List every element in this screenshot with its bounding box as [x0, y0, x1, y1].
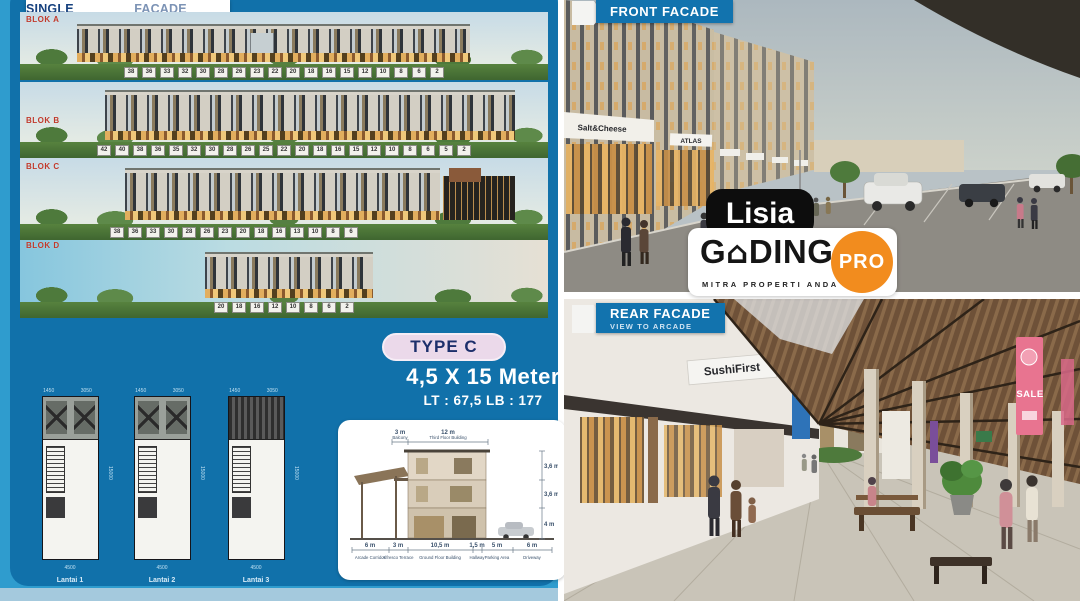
- svg-text:Ground Floor Building: Ground Floor Building: [419, 555, 461, 560]
- dim-label: 1450: [229, 388, 240, 394]
- unit-number-badge: 2: [340, 302, 354, 313]
- unit-number-badge: 10: [286, 302, 300, 313]
- unit-number-badge: 2: [457, 145, 471, 156]
- rear-facade-render: SushiFirst: [564, 299, 1080, 601]
- dim-label: 3050: [267, 388, 278, 394]
- gading-letter-g: G: [700, 233, 726, 270]
- blok-c-building: [125, 168, 440, 220]
- unit-number-badge: 12: [358, 67, 372, 78]
- rear-facade-scene: SushiFirst: [564, 299, 1080, 601]
- unit-number-badge: 12: [268, 302, 282, 313]
- unit-number-badge: 20: [236, 227, 250, 238]
- svg-text:Parking Area: Parking Area: [485, 555, 510, 560]
- svg-text:Driveway: Driveway: [523, 555, 542, 560]
- svg-text:Alfresco Terrace: Alfresco Terrace: [383, 555, 415, 560]
- unit-number-badge: 42: [97, 145, 111, 156]
- dim-label: 3050: [81, 388, 92, 394]
- sale-banner-text: SALE: [1016, 389, 1043, 400]
- dim-label: 15000: [293, 466, 299, 480]
- blok-a-label: BLOK A: [26, 15, 59, 24]
- carport-cross: [166, 401, 187, 434]
- blok-c-dark-building: [443, 176, 515, 220]
- unit-number-badge: 38: [124, 67, 138, 78]
- dim-label: 15000: [107, 466, 113, 480]
- dim-label: 1450: [43, 388, 54, 394]
- svg-text:6 m: 6 m: [365, 543, 375, 549]
- brochure-canvas: SINGLE BALCONY FACADE DESIGN BLOK A 3836…: [0, 0, 1080, 601]
- carport-area: [135, 397, 190, 440]
- unit-number-badge: 28: [214, 67, 228, 78]
- unit-number-badge: 35: [169, 145, 183, 156]
- unit-number-badge: 30: [164, 227, 178, 238]
- unit-number-badge: 6: [344, 227, 358, 238]
- unit-number-badge: 18: [304, 67, 318, 78]
- svg-text:3,6 m: 3,6 m: [544, 492, 558, 498]
- stair-area: [138, 446, 157, 493]
- carport-area: [43, 397, 98, 440]
- facade-strip-blok-a: BLOK A 383633323028262322201816151210862: [20, 12, 548, 80]
- bathroom-area: [46, 497, 65, 518]
- svg-text:6 m: 6 m: [527, 543, 537, 549]
- logo-tagline: MITRA PROPERTI ANDA: [702, 280, 839, 289]
- pro-badge: PRO: [831, 231, 893, 293]
- unit-number-badge: 28: [223, 145, 237, 156]
- type-c-pill: TYPE C: [382, 333, 506, 361]
- floor-plan-drawing: [134, 396, 191, 560]
- type-c-area: LT : 67,5 LB : 177: [390, 393, 576, 408]
- front-facade-banner-title: FRONT FACADE: [610, 4, 719, 19]
- section-diagram: 3 m Balcony 12 m Third Floor Building: [346, 426, 558, 574]
- mid-shophouse: ATLAS: [654, 10, 714, 235]
- unit-number-badge: 20: [214, 302, 228, 313]
- svg-text:3 m: 3 m: [393, 543, 403, 549]
- unit-number-badge: 6: [412, 67, 426, 78]
- carport-cross: [74, 401, 95, 434]
- carport-cross: [46, 401, 67, 434]
- roof-deck-area: [229, 397, 284, 440]
- unit-number-badge: 28: [182, 227, 196, 238]
- svg-text:5 m: 5 m: [492, 543, 502, 549]
- unit-number-badge: 10: [308, 227, 322, 238]
- section-diagram-card: 3 m Balcony 12 m Third Floor Building: [338, 420, 566, 580]
- storefront-sign-atlas: ATLAS: [680, 138, 702, 145]
- stair-area: [232, 446, 251, 493]
- unit-number-badge: 8: [304, 302, 318, 313]
- unit-number-badge: 38: [133, 145, 147, 156]
- unit-number-badge: 38: [110, 227, 124, 238]
- unit-number-badge: 36: [128, 227, 142, 238]
- unit-number-badge: 20: [286, 67, 300, 78]
- unit-number-badge: 26: [241, 145, 255, 156]
- svg-text:3,6 m: 3,6 m: [544, 464, 558, 470]
- floor-plan-label: Lantai 1: [28, 577, 112, 584]
- rear-facade-banner-title: REAR FACADE: [610, 306, 711, 321]
- unit-number-badge: 23: [250, 67, 264, 78]
- gading-wordmark: G⌂DING: [700, 234, 833, 271]
- unit-number-badge: 30: [196, 67, 210, 78]
- unit-number-badge: 26: [200, 227, 214, 238]
- floor-plan-drawing: [228, 396, 285, 560]
- blok-d-building: [205, 252, 373, 298]
- dim-label: 4500: [120, 565, 204, 571]
- blok-a-unit-numbers: 383633323028262322201816151210862: [20, 67, 548, 78]
- gading-pro-logo-card: G⌂DING PRO MITRA PROPERTI ANDA: [688, 228, 897, 296]
- blok-a-building: [77, 24, 470, 62]
- right-shopfront: [882, 411, 910, 479]
- dim-label: 4500: [214, 565, 298, 571]
- unit-number-badge: 40: [115, 145, 129, 156]
- dim-label: 3050: [173, 388, 184, 394]
- unit-number-badge: 25: [259, 145, 273, 156]
- facade-strip-blok-d: BLOK D 2018161210862: [20, 240, 548, 318]
- unit-number-badge: 20: [295, 145, 309, 156]
- unit-number-badge: 13: [290, 227, 304, 238]
- unit-number-badge: 18: [232, 302, 246, 313]
- unit-number-badge: 30: [205, 145, 219, 156]
- unit-number-badge: 16: [331, 145, 345, 156]
- dim-label: 1450: [135, 388, 146, 394]
- floor-plan-lantai-2: 1450 3050 15000 4500 Lantai 2: [120, 388, 204, 584]
- carport-cross: [138, 401, 159, 434]
- blok-a-gate: [250, 33, 274, 62]
- unit-number-badge: 8: [403, 145, 417, 156]
- floor-plan-label: Lantai 2: [120, 577, 204, 584]
- dim-label: 15000: [199, 466, 205, 480]
- unit-number-badge: 8: [326, 227, 340, 238]
- unit-number-badge: 18: [254, 227, 268, 238]
- svg-text:10,5 m: 10,5 m: [431, 543, 450, 549]
- unit-number-badge: 5: [439, 145, 453, 156]
- svg-text:1,5 m: 1,5 m: [469, 543, 484, 549]
- car: [498, 522, 534, 540]
- unit-number-badge: 10: [376, 67, 390, 78]
- svg-text:Hallway: Hallway: [469, 555, 485, 560]
- svg-text:4 m: 4 m: [544, 522, 554, 528]
- facade-strip-blok-c: BLOK C 38363330282623201816131086: [20, 158, 548, 240]
- floor-plan-drawing: [42, 396, 99, 560]
- unit-number-badge: 16: [272, 227, 286, 238]
- facade-strip-blok-b: BLOK B 424038363532302826252220181615121…: [20, 82, 548, 158]
- unit-number-badge: 32: [178, 67, 192, 78]
- floor-plan-lantai-1: 1450 3050 15000 4500 Lantai 1: [28, 388, 112, 584]
- dim-label: 4500: [28, 565, 112, 571]
- building-section: [394, 451, 490, 538]
- green-sign: [976, 431, 992, 442]
- blok-c-unit-numbers: 38363330282623201816131086: [20, 227, 448, 238]
- bottom-light-strip: [0, 588, 558, 601]
- unit-number-badge: 6: [421, 145, 435, 156]
- floor-plan-label: Lantai 3: [214, 577, 298, 584]
- stair-area: [46, 446, 65, 493]
- unit-number-badge: 15: [340, 67, 354, 78]
- blok-b-building: [105, 90, 515, 140]
- unit-number-badge: 18: [313, 145, 327, 156]
- type-c-size: 4,5 X 15 Meter: [390, 364, 576, 390]
- unit-number-badge: 16: [322, 67, 336, 78]
- rear-facade-banner-subtitle: VIEW TO ARCADE: [610, 322, 711, 331]
- blok-d-label: BLOK D: [26, 241, 60, 250]
- unit-number-badge: 22: [277, 145, 291, 156]
- blok-b-unit-numbers: 42403836353230282625222018161512108652: [20, 145, 548, 156]
- unit-number-badge: 12: [367, 145, 381, 156]
- unit-number-badge: 33: [146, 227, 160, 238]
- blok-d-unit-numbers: 2018161210862: [20, 302, 548, 313]
- bathroom-area: [232, 497, 251, 518]
- unit-number-badge: 32: [187, 145, 201, 156]
- svg-text:Third Floor Building: Third Floor Building: [429, 435, 467, 440]
- unit-number-badge: 26: [232, 67, 246, 78]
- blok-b-label: BLOK B: [26, 116, 60, 125]
- front-facade-banner-bar: FRONT FACADE: [596, 0, 733, 23]
- unit-number-badge: 23: [218, 227, 232, 238]
- blok-c-dark-building-top: [449, 168, 481, 182]
- left-blue-panel: SINGLE BALCONY FACADE DESIGN BLOK A 3836…: [10, 0, 558, 586]
- unit-number-badge: 15: [349, 145, 363, 156]
- unit-number-badge: 6: [322, 302, 336, 313]
- unit-number-badge: 36: [142, 67, 156, 78]
- unit-number-badge: 33: [160, 67, 174, 78]
- bathroom-area: [138, 497, 157, 518]
- unit-number-badge: 8: [394, 67, 408, 78]
- unit-number-badge: 10: [385, 145, 399, 156]
- floor-plan-lantai-3: 1450 3050 15000 4500 Lantai 3: [214, 388, 298, 584]
- rear-facade-banner-bar: REAR FACADE VIEW TO ARCADE: [596, 303, 725, 333]
- gading-letters-ding: DING: [749, 233, 834, 270]
- purple-banner: [930, 421, 938, 463]
- blok-c-label: BLOK C: [26, 162, 60, 171]
- unit-number-badge: 16: [250, 302, 264, 313]
- svg-text:Balcony: Balcony: [392, 435, 408, 440]
- unit-number-badge: 36: [151, 145, 165, 156]
- svg-text:Arcade Corridor: Arcade Corridor: [355, 555, 386, 560]
- unit-number-badge: 2: [430, 67, 444, 78]
- house-icon: ⌂: [726, 235, 749, 271]
- unit-number-badge: 22: [268, 67, 282, 78]
- storefront-sign-saltcheese: Salt&Cheese: [577, 123, 627, 134]
